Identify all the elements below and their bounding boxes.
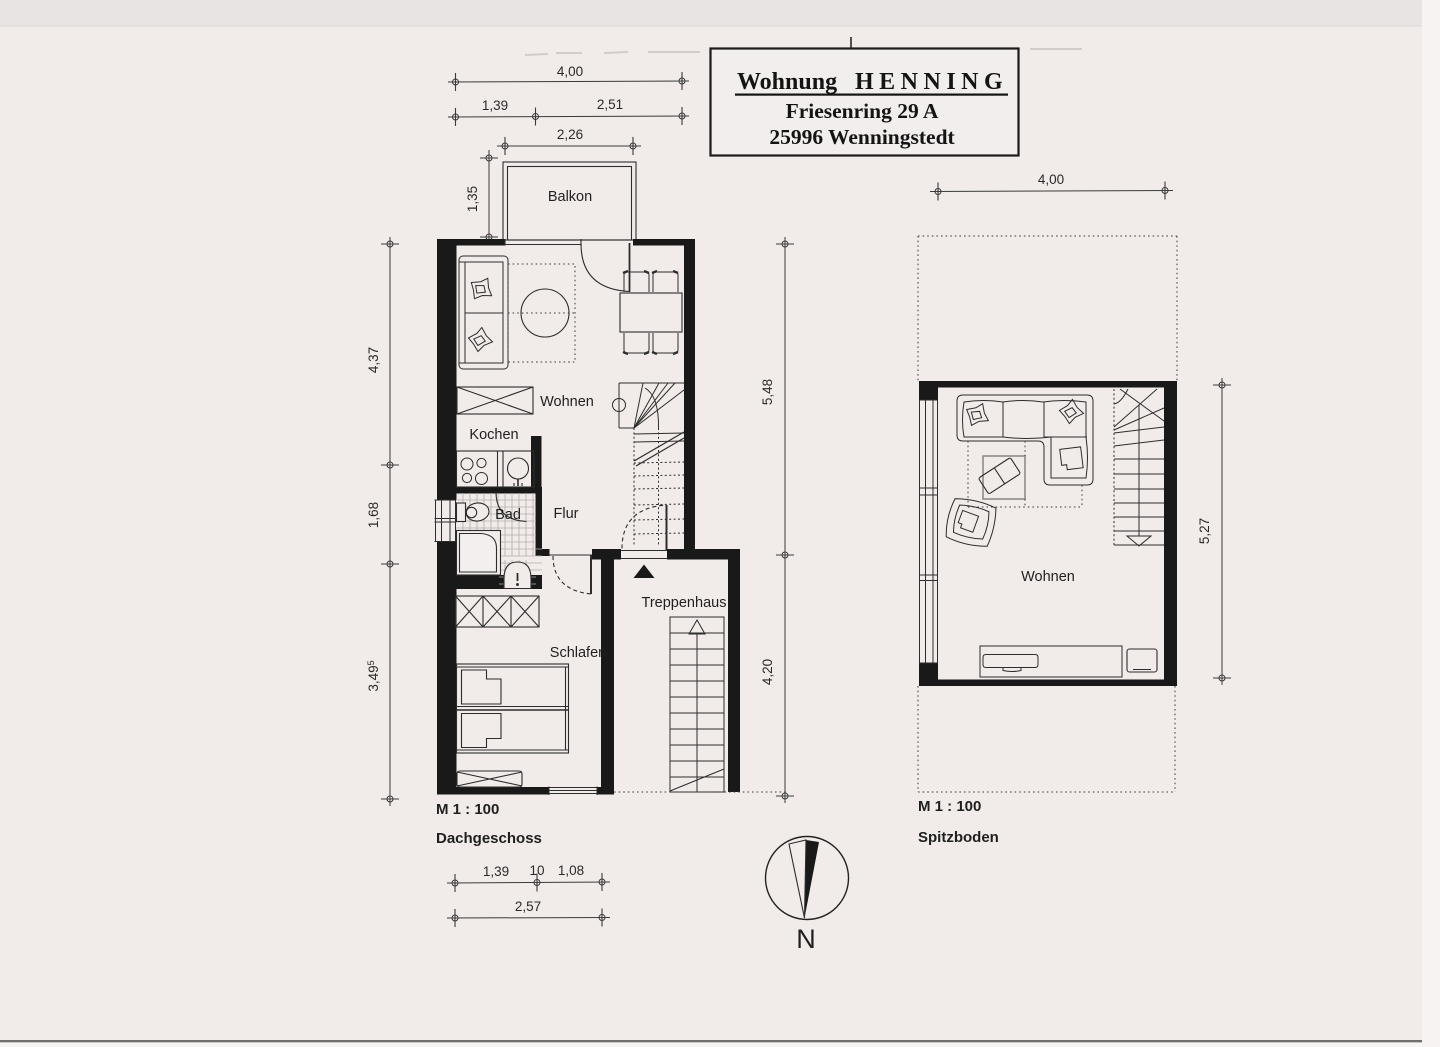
svg-text:Kochen: Kochen [469, 427, 518, 443]
svg-text:4,00: 4,00 [1038, 172, 1064, 187]
svg-text:Wohnen: Wohnen [540, 394, 594, 410]
svg-text:N: N [796, 924, 816, 954]
svg-text:1,39: 1,39 [483, 864, 509, 879]
svg-text:1,39: 1,39 [482, 98, 508, 113]
svg-text:4,37: 4,37 [366, 347, 381, 373]
svg-text:10: 10 [529, 863, 544, 878]
svg-text:Balkon: Balkon [548, 189, 592, 205]
svg-text:25996 Wenningstedt: 25996 Wenningstedt [769, 125, 955, 149]
svg-text:Bad: Bad [495, 507, 521, 523]
svg-text:Flur: Flur [554, 506, 579, 522]
svg-text:Friesenring 29 A: Friesenring 29 A [786, 99, 939, 123]
svg-text:5,48: 5,48 [760, 379, 775, 405]
svg-text:4,20: 4,20 [760, 659, 775, 685]
svg-text:4,00: 4,00 [557, 64, 583, 79]
svg-text:1,08: 1,08 [558, 863, 584, 878]
svg-text:HENNING: HENNING [855, 69, 1008, 95]
svg-text:M 1 : 100: M 1 : 100 [436, 801, 499, 818]
svg-text:1,35: 1,35 [465, 186, 480, 212]
svg-text:Treppenhaus: Treppenhaus [642, 595, 727, 611]
svg-text:Wohnen: Wohnen [1021, 569, 1075, 585]
svg-text:Wohnung: Wohnung [737, 69, 837, 95]
svg-text:2,51: 2,51 [597, 97, 623, 112]
svg-text:1,68: 1,68 [366, 502, 381, 528]
svg-text:5,27: 5,27 [1197, 518, 1212, 544]
svg-text:Spitzboden: Spitzboden [918, 829, 999, 846]
svg-text:2,26: 2,26 [557, 127, 583, 142]
svg-text:Dachgeschoss: Dachgeschoss [436, 830, 542, 847]
svg-text:M 1 : 100: M 1 : 100 [918, 798, 981, 815]
svg-text:Schlafen: Schlafen [550, 645, 606, 661]
svg-text:2,57: 2,57 [515, 899, 541, 914]
